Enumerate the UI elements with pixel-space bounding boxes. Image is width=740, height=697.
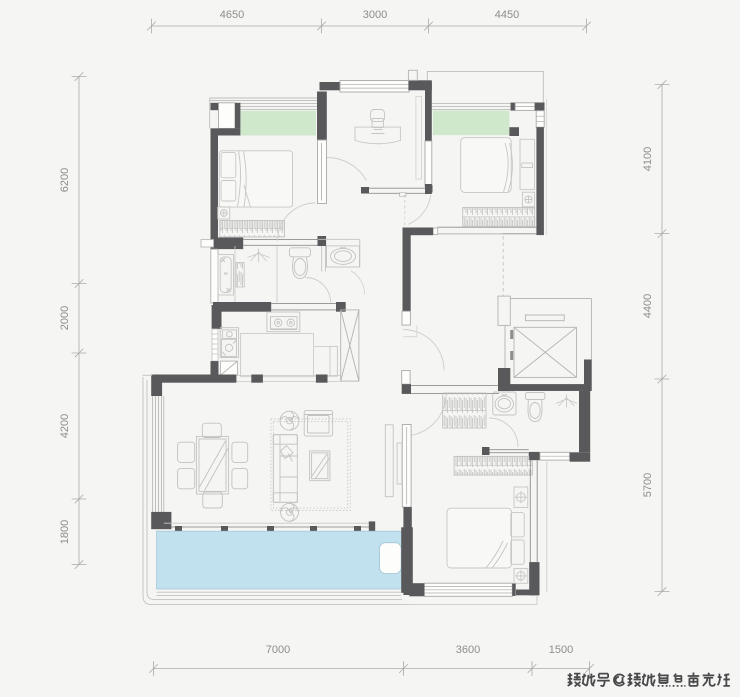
svg-text:6200: 6200 [59,168,71,192]
svg-text:4650: 4650 [220,9,244,21]
svg-text:4100: 4100 [642,147,654,171]
svg-text:2000: 2000 [59,306,71,330]
svg-text:3000: 3000 [363,9,387,21]
svg-text:1800: 1800 [59,520,71,544]
svg-text:3600: 3600 [456,644,480,656]
svg-text:7000: 7000 [266,644,290,656]
svg-text:1500: 1500 [549,644,573,656]
svg-text:4450: 4450 [495,9,519,21]
svg-text:4200: 4200 [59,414,71,438]
svg-text:5700: 5700 [642,473,654,497]
svg-text:4400: 4400 [642,294,654,318]
